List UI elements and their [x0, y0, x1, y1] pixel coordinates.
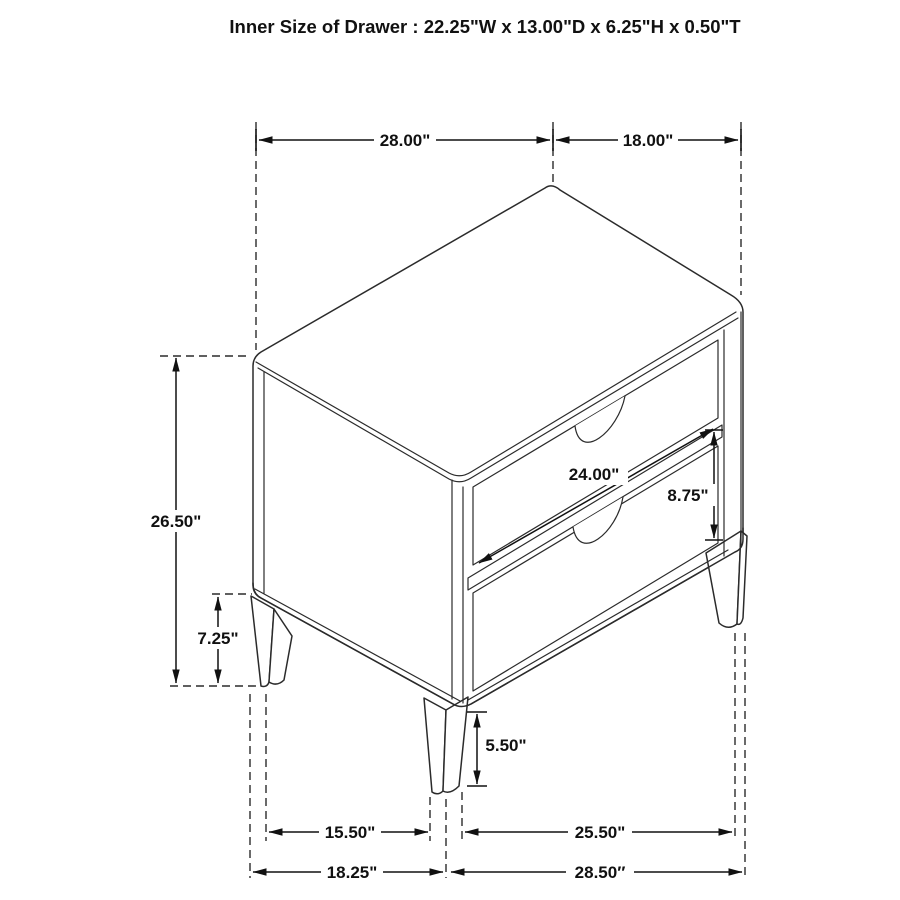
dimension-diagram-page: 28.00" 18.00" 26.50" 7.25" 24.00" 8.	[0, 0, 900, 900]
dim-leg-height: 5.50"	[467, 712, 531, 786]
dim-bottom-clearance: 7.25"	[193, 597, 243, 683]
dim-label-front-base-width: 18.25"	[327, 863, 378, 882]
dim-front-base-width: 18.25"	[253, 861, 443, 883]
dim-label-front-leg-span: 15.50"	[325, 823, 376, 842]
leg-front-right-face	[443, 697, 468, 792]
dim-top-depth: 18.00"	[556, 129, 738, 151]
dim-label-side-leg-span: 25.50"	[575, 823, 626, 842]
dim-label-leg-height: 5.50"	[485, 736, 526, 755]
dim-label-top-width: 28.00"	[380, 131, 431, 150]
dim-label-bottom-clearance: 7.25"	[197, 629, 238, 648]
dimension-diagram-svg: 28.00" 18.00" 26.50" 7.25" 24.00" 8.	[0, 0, 900, 900]
dim-label-drawer-height: 8.75"	[667, 486, 708, 505]
dim-label-top-depth: 18.00"	[623, 131, 674, 150]
dim-label-overall-height: 26.50"	[151, 512, 202, 531]
dim-front-leg-span: 15.50"	[269, 821, 428, 843]
dim-label-drawer-width: 24.00"	[569, 465, 620, 484]
dim-label-side-base-depth: 28.50″	[575, 863, 626, 882]
dim-top-width: 28.00"	[259, 129, 550, 151]
page-title: Inner Size of Drawer : 22.25"W x 13.00"D…	[229, 16, 741, 37]
dim-side-leg-span: 25.50"	[465, 821, 732, 843]
dim-side-base-depth: 28.50″	[451, 861, 742, 883]
